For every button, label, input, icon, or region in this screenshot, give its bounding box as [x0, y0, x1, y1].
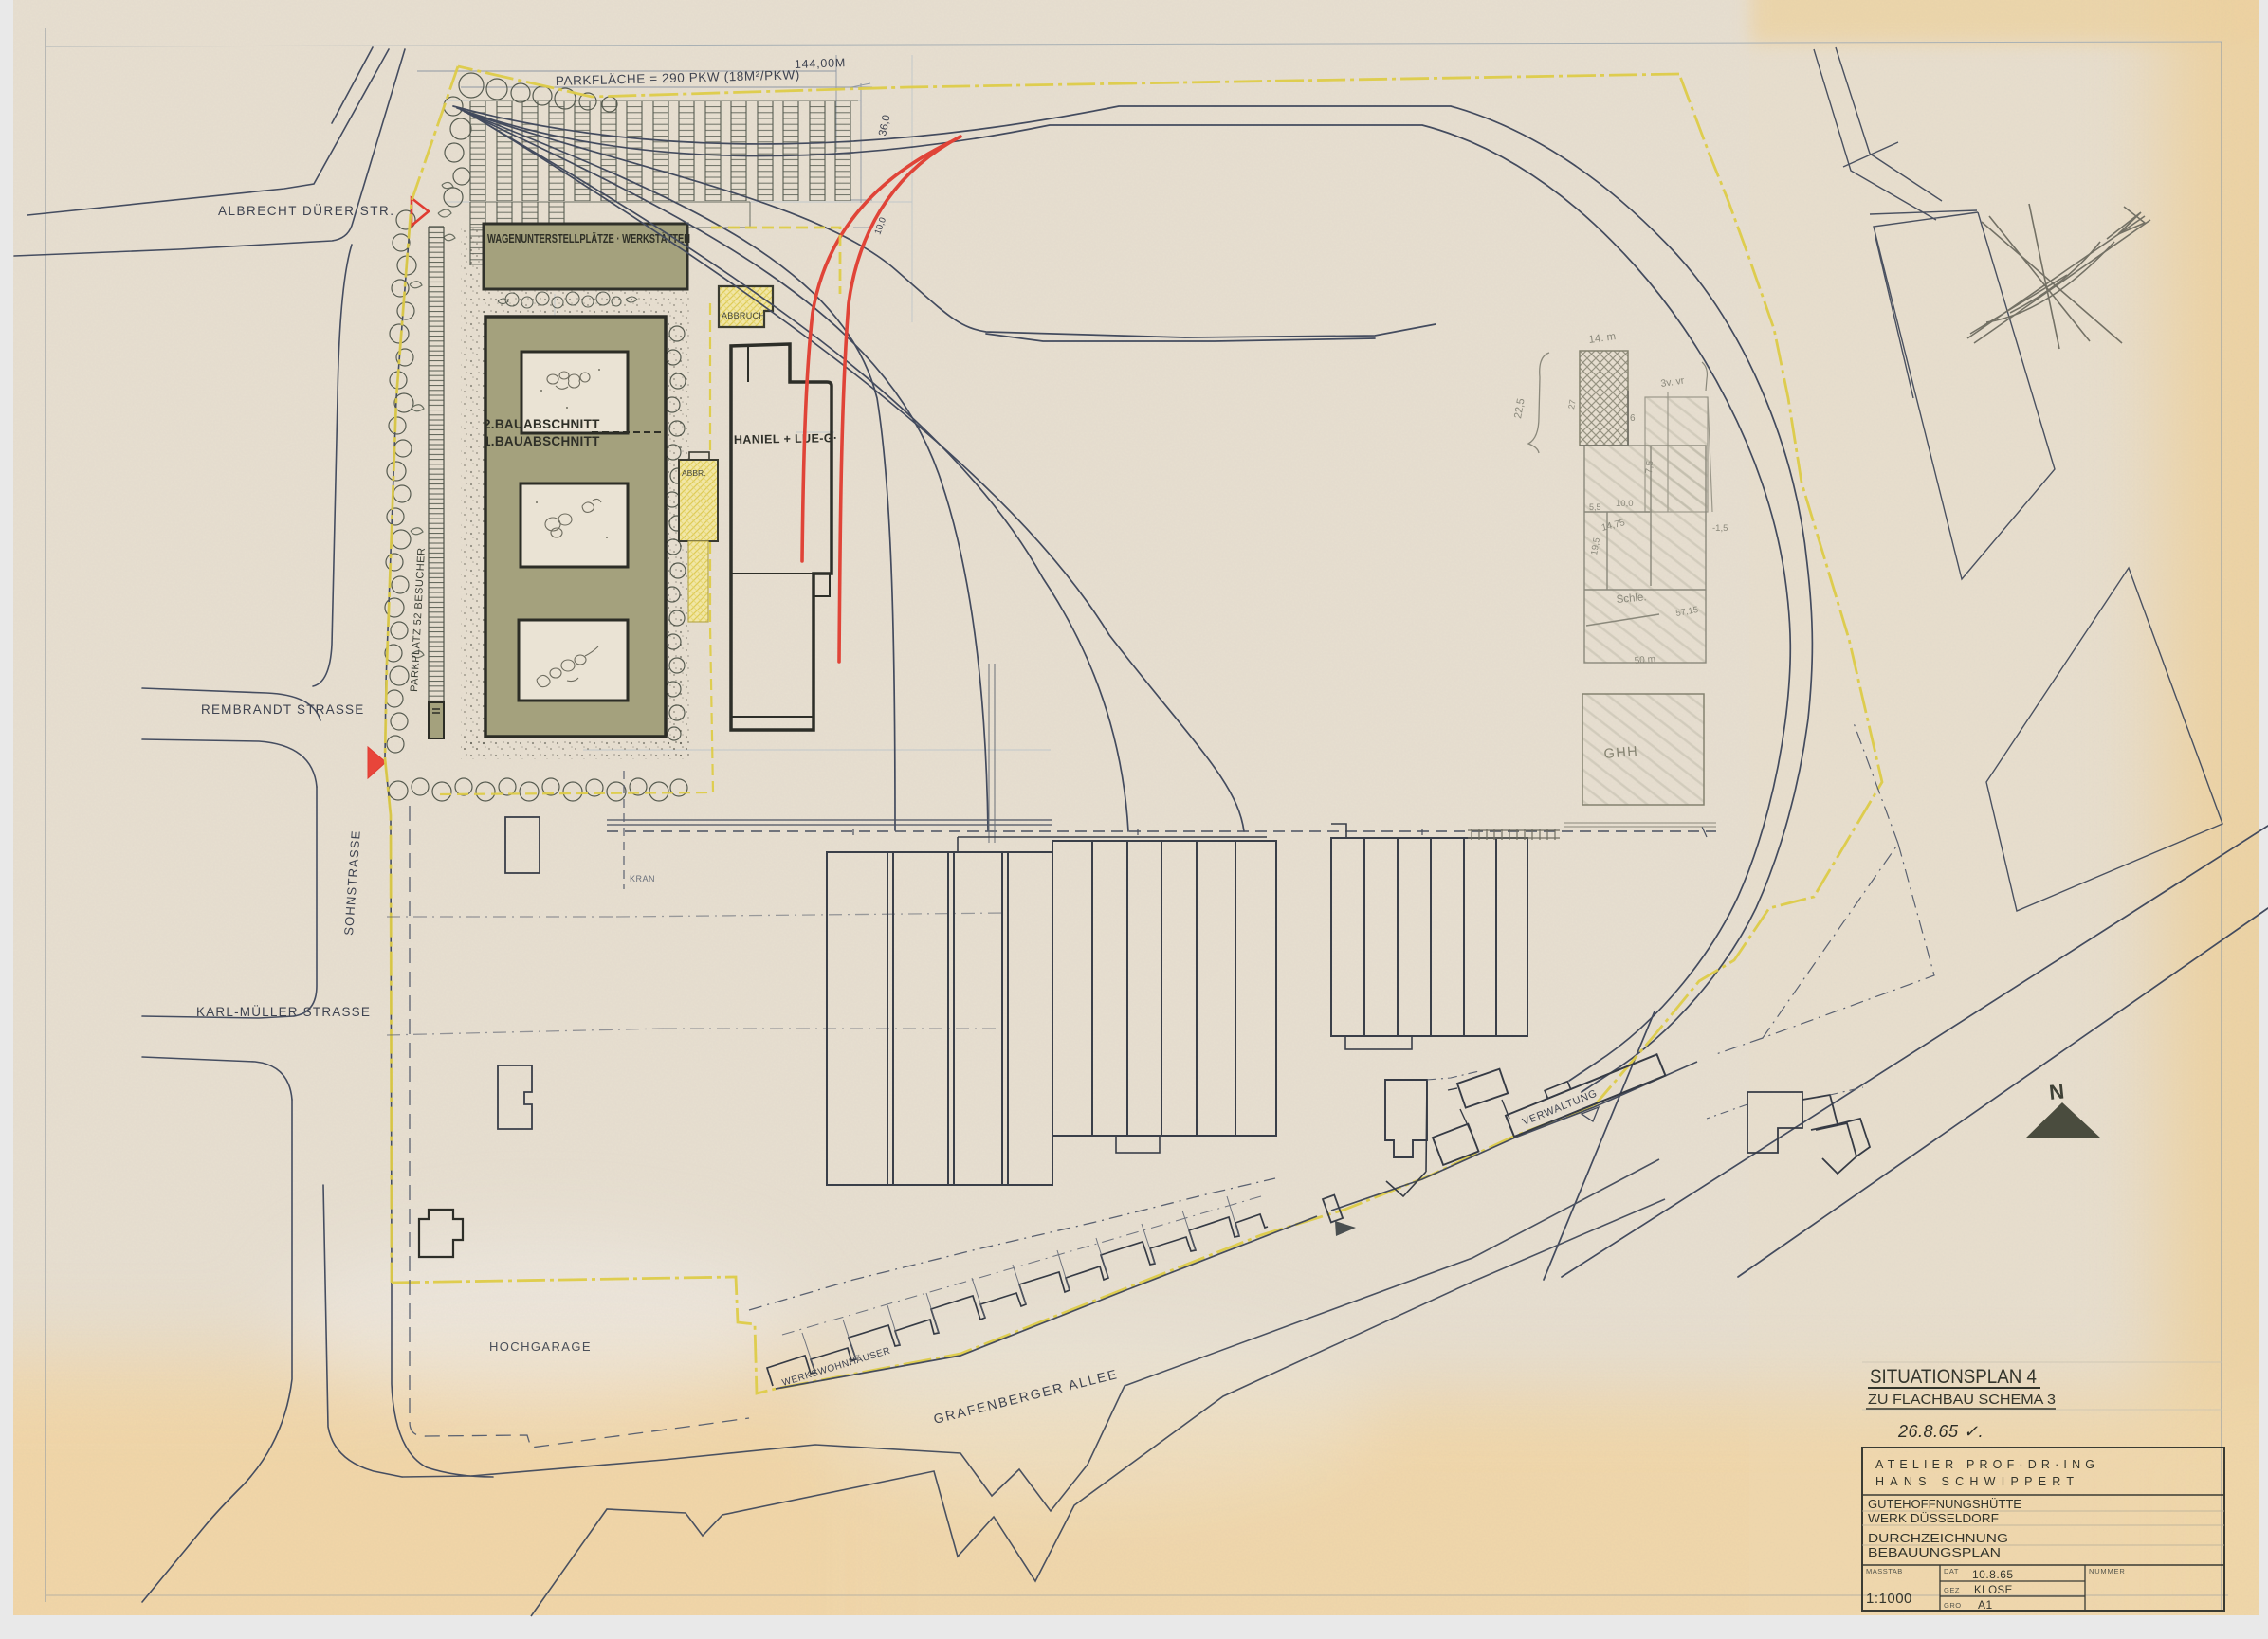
svg-text:ALBRECHT DÜRER STR.: ALBRECHT DÜRER STR. — [218, 204, 395, 218]
svg-text:HOCHGARAGE: HOCHGARAGE — [489, 1339, 592, 1354]
svg-text:ABBR.: ABBR. — [682, 468, 706, 478]
svg-text:WERK DÜSSELDORF: WERK DÜSSELDORF — [1868, 1511, 1999, 1525]
svg-text:1.BAUABSCHNITT: 1.BAUABSCHNITT — [484, 434, 600, 448]
svg-text:ZU FLACHBAU SCHEMA 3: ZU FLACHBAU SCHEMA 3 — [1868, 1393, 2056, 1408]
svg-text:GHH: GHH — [1603, 744, 1639, 762]
svg-text:GEZ: GEZ — [1944, 1586, 1960, 1594]
svg-text:GRO: GRO — [1944, 1601, 1962, 1610]
svg-text:1:1000: 1:1000 — [1866, 1591, 1912, 1607]
svg-text:N: N — [2048, 1079, 2065, 1104]
svg-text:10,0: 10,0 — [1616, 499, 1634, 509]
svg-text:HANS SCHWIPPERT: HANS SCHWIPPERT — [1875, 1475, 2076, 1488]
svg-text:5,5: 5,5 — [1589, 502, 1601, 512]
svg-text:BEBAUUNGSPLAN: BEBAUUNGSPLAN — [1868, 1545, 2001, 1559]
svg-text:MASSTAB: MASSTAB — [1866, 1567, 1903, 1575]
svg-text:WAGENUNTERSTELLPLÄTZE · WERKST: WAGENUNTERSTELLPLÄTZE · WERKSTÄTTEN — [487, 231, 690, 246]
svg-text:NUMMER: NUMMER — [2089, 1567, 2126, 1575]
svg-text:DAT: DAT — [1944, 1567, 1959, 1575]
svg-text:144,00M: 144,00M — [795, 56, 847, 71]
svg-text:27: 27 — [1566, 399, 1578, 410]
svg-text:GUTEHOFFNUNGSHÜTTE: GUTEHOFFNUNGSHÜTTE — [1868, 1497, 2021, 1511]
svg-text:SITUATIONSPLAN 4: SITUATIONSPLAN 4 — [1870, 1366, 2037, 1388]
svg-text:10.8.65: 10.8.65 — [1972, 1568, 2014, 1581]
svg-text:KARL-MÜLLER STRASSE: KARL-MÜLLER STRASSE — [196, 1005, 371, 1019]
svg-text:ATELIER PROF·DR·ING: ATELIER PROF·DR·ING — [1875, 1458, 2097, 1471]
svg-text:26.8.65 ✓.: 26.8.65 ✓. — [1897, 1422, 1984, 1441]
svg-text:KRAN: KRAN — [630, 874, 655, 883]
svg-text:HANIEL + LUE-G·: HANIEL + LUE-G· — [734, 431, 838, 446]
svg-text:A1: A1 — [1978, 1598, 1993, 1612]
svg-text:ABBRUCH: ABBRUCH — [722, 311, 765, 320]
svg-text:50 m: 50 m — [1634, 654, 1655, 666]
svg-text:DURCHZEICHNUNG: DURCHZEICHNUNG — [1868, 1531, 2008, 1545]
svg-text:REMBRANDT STRASSE: REMBRANDT STRASSE — [201, 702, 364, 717]
svg-text:2.BAUABSCHNITT: 2.BAUABSCHNITT — [484, 417, 600, 431]
svg-text:-1,5: -1,5 — [1712, 523, 1728, 534]
svg-text:KLOSE: KLOSE — [1974, 1585, 2013, 1596]
svg-text:6: 6 — [1630, 413, 1636, 424]
